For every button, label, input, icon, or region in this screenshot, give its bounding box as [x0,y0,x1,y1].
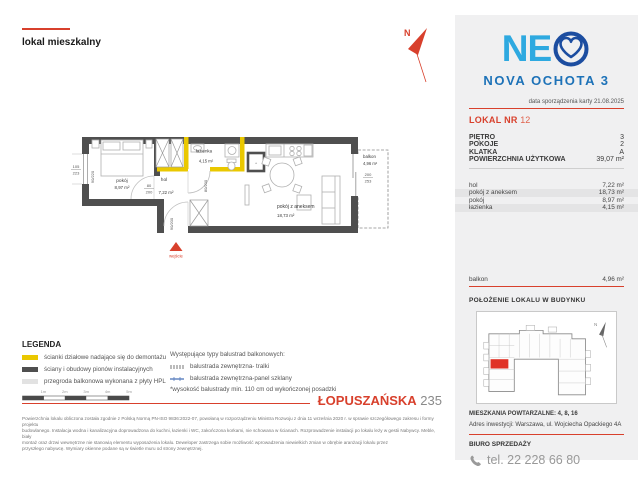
bed [92,140,152,176]
room-list: hol 7,22 m² pokój z aneksem 18,73 m² pok… [455,182,638,212]
balusters-icon [170,364,184,370]
glass-panel-icon [170,376,184,382]
yellow-wall-swatch [22,355,38,360]
living-area: 18,73 m² [277,213,295,218]
compass-tail [416,51,426,82]
building-diagram: N [477,312,616,403]
window-side-dim: 90/220 [90,170,95,183]
highlighted-unit [491,359,509,368]
attr-row: POWIERZCHNIA UŻYTKOWA 39,07 m² [469,156,624,163]
location-heading: POŁOŻENIE LOKALU W BUDYNKU [455,297,638,304]
legend-item: balustrada zewnętrzna-panel szklany [170,375,430,382]
disclaimer-line: przyszłego nabywcę. Wymiary okienne poda… [22,446,440,452]
bedroom-door-height-dim: 200 [146,190,153,195]
attr-row: POKOJE 2 [469,141,624,148]
unit-type-block: lokal mieszkalny [22,28,101,48]
kitchen-sink-icon [269,146,281,155]
bathroom-area: 4,15 m² [199,159,214,164]
street-title: ŁOPUSZAŃSKA 235 [300,393,442,408]
unit-type-label: lokal mieszkalny [22,37,101,48]
bedroom-area: 8,97 m² [115,185,130,190]
light-wall-swatch [22,379,38,384]
project-name: NOVA OCHOTA 3 [455,73,638,88]
room-row: pokój z aneksem 18,73 m² [455,189,638,197]
building-location-box: N [476,311,617,404]
compass-north-label: N [404,28,411,38]
scale-bar: 1m 2m 3m 4m 5m [22,388,137,404]
bedroom-door-width-dim: 80 [147,183,152,188]
svg-text:5m: 5m [126,389,132,394]
card-date: data sporządzenia karty 21.08.2025 [455,99,638,105]
balcony-row: balkon 4,96 m² [455,276,638,283]
sales-office-label: BIURO SPRZEDAŻY [455,441,638,448]
entrance-label: wejście [169,254,183,259]
north-compass: N [403,24,443,86]
bathroom-label: łazienka [196,149,213,154]
legend: LEGENDA ścianki działowe nadające się do… [22,340,442,385]
hall-label: hol [161,177,167,183]
bathroom-door-dim: 80/200 [203,179,208,192]
disclaimer-line: Powierzchnia lokalu obliczona została zg… [22,416,440,428]
entrance-arrow-icon [170,242,183,251]
street-name: ŁOPUSZAŃSKA [318,393,417,408]
room-row: łazienka 4,15 m² [455,204,638,212]
floor-plan: + [70,124,405,289]
svg-text:N: N [594,322,597,327]
attributes-table: PIĘTRO 3 POKOJE 2 KLATKA A POWIERZCHNIA … [455,134,638,164]
balcony-door-height-dim: 253 [365,179,372,184]
balustrade-heading: Występujące typy balustrad balkonowych: [170,351,430,358]
info-panel: NE NOVA OCHOTA 3 data sporządzenia karty… [455,15,638,460]
svg-text:4m: 4m [105,389,111,394]
sofa-icon [322,176,340,224]
legend-balustrades: Występujące typy balustrad balkonowych: … [170,351,430,393]
dark-wall-swatch [22,367,38,372]
window-width-dim: 105 [73,164,80,169]
offer-card-page: lokal mieszkalny N [0,0,640,480]
window-height-dim: 223 [73,171,80,176]
balcony-area: 4,96 m² [363,161,378,166]
tv-unit-icon [245,185,249,205]
entrance-marker: wejście [169,242,183,259]
brand-logo: NE [455,28,638,70]
bedroom-window [72,154,90,184]
office-red-line [469,434,624,435]
unit-number-value: 12 [520,115,530,125]
balcony-door-width-dim: 200 [365,172,372,177]
bedroom-label: pokój [116,178,127,184]
unit-number-label: LOKAL NR [469,115,518,125]
disclaimer: Powierzchnia lokalu obliczona została zg… [22,416,440,452]
dining-table-icon [270,163,294,187]
balcony-red-line [469,286,624,287]
footer-red-line [22,403,310,404]
entrance-door-dim: 90/200 [169,217,174,230]
room-row: hol 7,22 m² [455,182,638,190]
red-accent-bar [22,28,70,30]
unit-number-row: LOKAL NR 12 [455,109,638,125]
living-label: pokój z aneksem [277,204,315,210]
balustrade-note: *wysokość balustrady min. 110 cm od wyko… [170,386,430,393]
street-number: 235 [420,393,442,408]
balcony-door [351,154,359,196]
investment-address: Adres inwestycji: Warszawa, ul. Wojciech… [455,422,638,428]
room-row: pokój 8,97 m² [455,197,638,205]
hall-area: 7,22 m² [159,190,174,195]
logo-ne-text: NE [502,29,551,69]
compass-arrow-icon [408,28,427,55]
building-north-icon: N [594,322,607,347]
svg-text:2m: 2m [62,389,68,394]
balcony-label: balkon [363,154,376,159]
attributes-separator [469,168,624,169]
logo-heart-icon [551,29,591,69]
phone-number[interactable]: tel. 22 228 66 80 [487,453,580,467]
svg-text:1m: 1m [41,389,47,394]
fridge-icon [304,145,312,156]
phone-row[interactable]: tel. 22 228 66 80 [455,453,638,467]
phone-icon [469,454,482,467]
kitchen-counter [266,144,313,157]
attr-row: PIĘTRO 3 [469,134,624,141]
legend-title: LEGENDA [22,340,442,349]
repeat-units: MIESZKANIA POWTARZALNE: 4, 8, 16 [455,411,638,417]
svg-text:3m: 3m [83,389,89,394]
disclaimer-line: budowlanego. Instalacja wodna i kanaliza… [22,428,440,440]
legend-item: balustrada zewnętrzna- tralki [170,363,430,370]
